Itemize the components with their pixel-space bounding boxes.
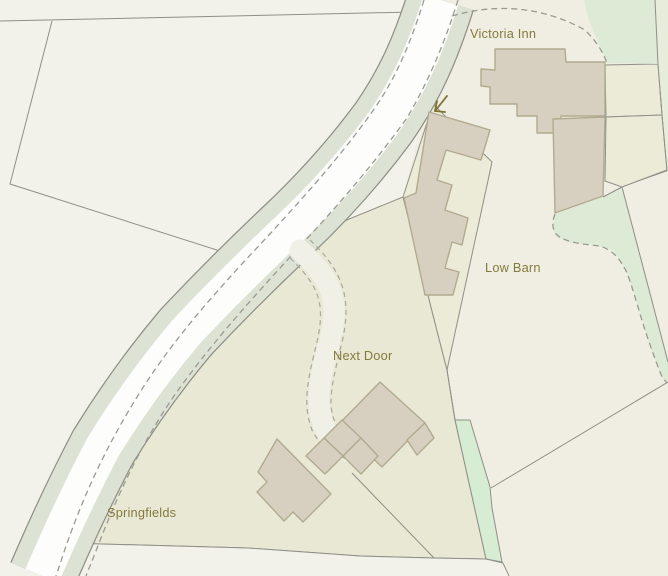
map-canvas[interactable]: Victoria Inn Low Barn Next Door Springfi… — [0, 0, 668, 576]
label-springfields: Springfields — [107, 505, 176, 520]
label-victoria-inn: Victoria Inn — [470, 26, 536, 41]
label-next-door: Next Door — [333, 348, 393, 363]
building-victoria-inn-south — [553, 117, 605, 213]
parcel-map: Victoria Inn Low Barn Next Door Springfi… — [0, 0, 668, 576]
label-low-barn: Low Barn — [485, 260, 541, 275]
parcel-ne-upper — [605, 64, 662, 117]
